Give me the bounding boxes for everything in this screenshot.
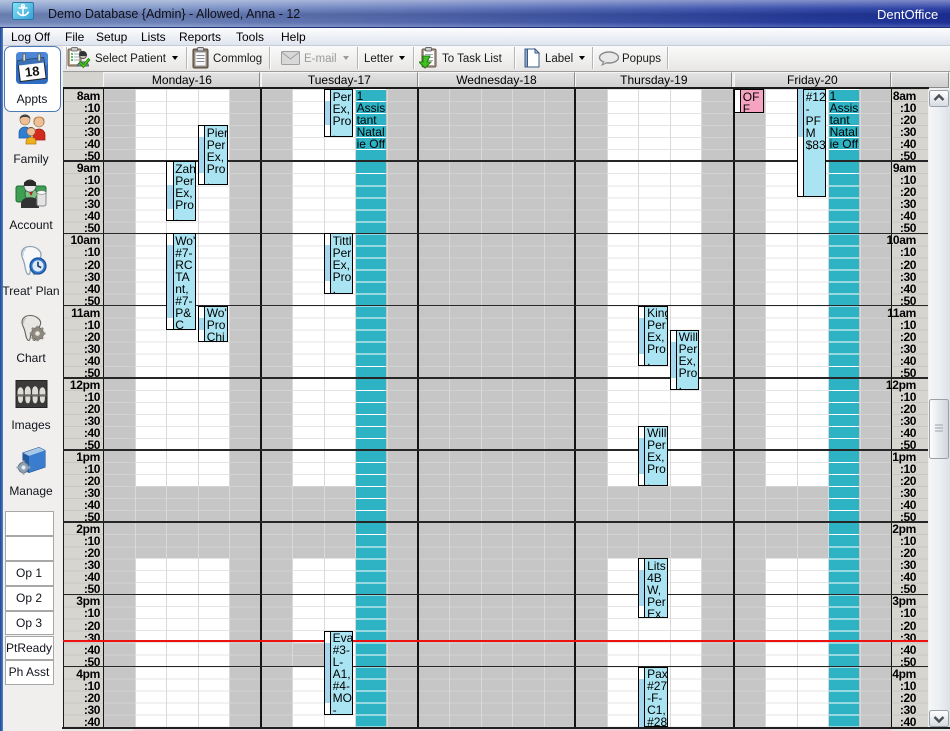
svg-text:18: 18: [24, 63, 40, 80]
